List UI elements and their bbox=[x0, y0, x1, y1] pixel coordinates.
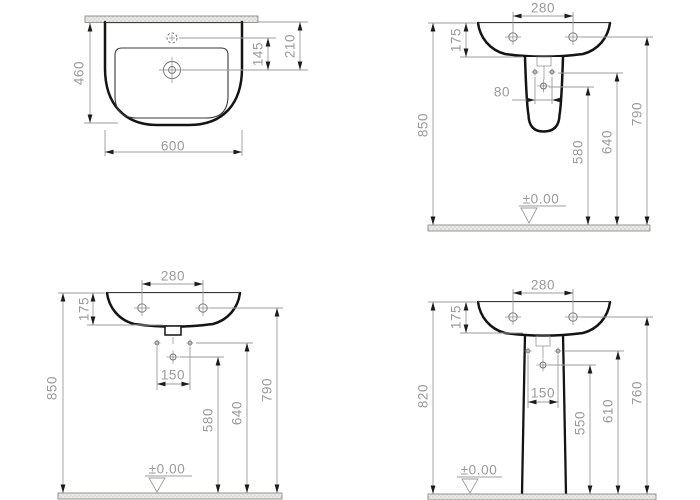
basin-outline-front bbox=[478, 302, 610, 336]
dim-label-bolt-spacing: 150 bbox=[161, 368, 185, 383]
plan-view: 460 600 145 210 bbox=[72, 16, 309, 156]
dim-label-tap-height: 760 bbox=[630, 381, 645, 405]
dim-label-rim-depth: 175 bbox=[449, 305, 464, 329]
datum-triangle-icon bbox=[149, 478, 165, 492]
floor-datum: ±0.00 bbox=[145, 462, 192, 493]
dim-label-wall-to-drain: 210 bbox=[283, 34, 298, 58]
dim-label-drain-height: 580 bbox=[571, 140, 586, 164]
dim-label-tap-height: 790 bbox=[260, 378, 275, 402]
floor-datum: ±0.00 bbox=[457, 463, 502, 494]
dim-label-tap-to-drain: 145 bbox=[251, 42, 266, 66]
dim-label-bolt-height: 640 bbox=[230, 401, 245, 425]
dim-label-overall-height: 850 bbox=[416, 113, 431, 137]
wall-section bbox=[85, 16, 258, 23]
dim-label-depth: 460 bbox=[72, 61, 87, 85]
dim-label-tap-height: 790 bbox=[630, 102, 645, 126]
siphon-hole bbox=[167, 351, 180, 364]
floor-line bbox=[58, 493, 282, 499]
datum-triangle-icon bbox=[521, 208, 537, 223]
dimension-drawing-canvas: 460 600 145 210 bbox=[0, 0, 700, 500]
dim-label-overall-height: 820 bbox=[416, 384, 431, 408]
faucet-hole bbox=[167, 33, 177, 43]
dim-label-hole-spacing: 280 bbox=[531, 278, 555, 293]
fixing-hole-left bbox=[154, 340, 161, 347]
half-pedestal-view: 280 175 80 850 580 640 790 ±0.00 bbox=[416, 1, 654, 232]
pedestal-view: 280 175 150 820 550 610 760 ±0.00 bbox=[416, 278, 657, 500]
dim-label-bolt-spacing: 80 bbox=[494, 85, 510, 100]
dim-label-bolt-height: 640 bbox=[600, 130, 615, 154]
datum-label: ±0.00 bbox=[523, 192, 560, 207]
dim-label-bolt-height: 610 bbox=[601, 399, 616, 423]
wall-hung-view: 280 175 150 850 580 640 790 ±0.00 bbox=[45, 269, 284, 500]
datum-label: ±0.00 bbox=[461, 463, 498, 478]
datum-label: ±0.00 bbox=[149, 462, 186, 477]
fixing-hole-right bbox=[187, 340, 194, 347]
dim-label-rim-depth: 175 bbox=[449, 28, 464, 52]
basin-outline-front bbox=[478, 23, 610, 57]
floor-datum: ±0.00 bbox=[519, 192, 566, 224]
dim-label-width: 600 bbox=[161, 139, 185, 154]
pedestal-body bbox=[522, 334, 566, 494]
dim-label-hole-spacing: 280 bbox=[161, 269, 185, 284]
drain-outlet bbox=[165, 326, 181, 335]
dim-label-drain-height: 580 bbox=[201, 408, 216, 432]
basin-outline-front bbox=[107, 293, 240, 327]
dim-label-rim-depth: 175 bbox=[77, 297, 92, 321]
technical-drawing-sheet: 460 600 145 210 bbox=[0, 0, 700, 500]
dim-label-hole-spacing: 280 bbox=[531, 1, 555, 16]
dim-label-overall-height: 850 bbox=[45, 376, 60, 400]
floor-line bbox=[428, 494, 656, 500]
floor-line bbox=[428, 225, 650, 231]
dim-label-bolt-spacing: 150 bbox=[531, 386, 555, 401]
datum-triangle-icon bbox=[462, 479, 478, 493]
dim-label-drain-height: 550 bbox=[573, 411, 588, 435]
